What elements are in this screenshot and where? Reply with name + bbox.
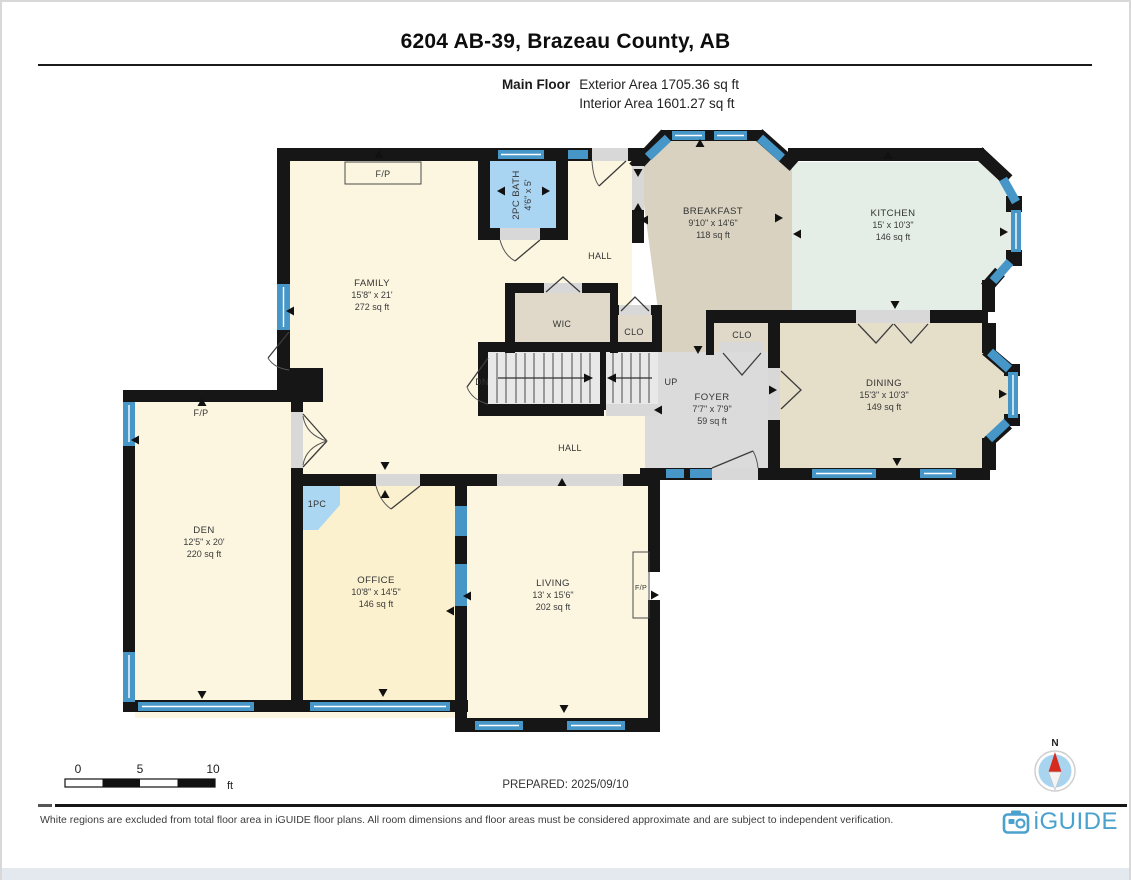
scale-tick-10: 10 xyxy=(206,762,220,776)
scale-tick-0: 0 xyxy=(75,762,82,776)
kitchen-dims: 15' x 10'3" xyxy=(872,220,913,230)
pc1-label: 1PC xyxy=(308,499,327,509)
living-dims: 13' x 15'6" xyxy=(532,590,573,600)
living-area: 202 sq ft xyxy=(536,602,571,612)
prepared-date: PREPARED: 2025/09/10 xyxy=(0,779,1131,791)
breakfast-name: BREAKFAST xyxy=(683,206,743,217)
compass-icon: N xyxy=(1030,735,1080,795)
dining-name: DINING xyxy=(866,378,902,389)
foyer-dims: 7'7" x 7'9" xyxy=(692,404,731,414)
den-fp-label: F/P xyxy=(194,408,209,418)
clo1-label: CLO xyxy=(624,327,643,337)
office-area: 146 sq ft xyxy=(359,599,394,609)
room-wic-floor xyxy=(515,293,610,342)
bottom-edge xyxy=(0,868,1131,880)
breakfast-area: 118 sq ft xyxy=(696,230,730,240)
iguide-logo: iGUIDE xyxy=(1002,808,1118,836)
floorplan-page: 6204 AB-39, Brazeau County, AB Main Floo… xyxy=(0,0,1131,880)
kitchen-area: 146 sq ft xyxy=(876,232,911,242)
family-name: FAMILY xyxy=(354,278,390,289)
iguide-logo-icon xyxy=(1002,809,1030,835)
compass-north-label: N xyxy=(1051,738,1058,749)
footer-disclaimer: White regions are excluded from total fl… xyxy=(40,814,981,826)
dn-label: DN xyxy=(475,377,489,387)
bath2pc-name: 2PC BATH xyxy=(511,170,522,219)
family-fp-label: F/P xyxy=(376,169,391,179)
office-dims: 10'8" x 14'5" xyxy=(351,587,400,597)
family-area: 272 sq ft xyxy=(355,302,390,312)
clo2-label: CLO xyxy=(732,330,751,340)
living-fp-label: F/P xyxy=(635,583,647,592)
family-dims: 15'8" x 21' xyxy=(351,290,392,300)
office-name: OFFICE xyxy=(357,575,395,586)
footer-dash xyxy=(38,804,52,807)
dining-dims: 15'3" x 10'3" xyxy=(859,390,908,400)
bath2pc-dims: 4'6" x 5' xyxy=(523,179,533,210)
den-dims: 12'5" x 20' xyxy=(183,537,224,547)
footer-divider xyxy=(55,804,1127,807)
den-area: 220 sq ft xyxy=(187,549,222,559)
hall-lower-label: HALL xyxy=(558,443,582,453)
hall-upper-label: HALL xyxy=(588,251,612,261)
up-label: UP xyxy=(664,377,677,387)
kitchen-name: KITCHEN xyxy=(871,208,916,219)
den-name: DEN xyxy=(193,525,214,536)
iguide-logo-text: iGUIDE xyxy=(1034,808,1118,836)
foyer-area: 59 sq ft xyxy=(697,416,727,426)
wic-label: WIC xyxy=(553,319,572,329)
foyer-name: FOYER xyxy=(694,392,729,403)
living-name: LIVING xyxy=(536,578,570,589)
scale-tick-5: 5 xyxy=(137,762,144,776)
floor-plan-svg: FAMILY 15'8" x 21' 272 sq ft BREAKFAST 9… xyxy=(0,0,1131,880)
breakfast-dims: 9'10" x 14'6" xyxy=(688,218,737,228)
dining-area: 149 sq ft xyxy=(867,402,902,412)
